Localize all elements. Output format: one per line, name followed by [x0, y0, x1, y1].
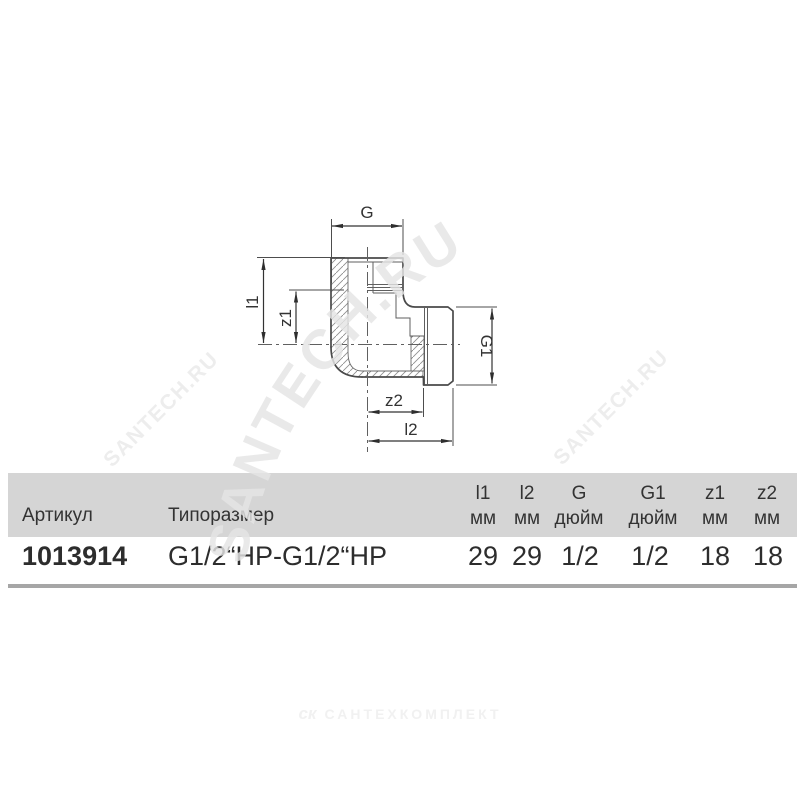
column-unit-z2: мм — [735, 508, 799, 530]
value-z2: 18 — [736, 541, 800, 572]
dim-label-g: G — [360, 203, 373, 222]
table-header-article: Артикул — [22, 505, 93, 527]
dim-label-g1: G1 — [477, 335, 496, 358]
dim-label-z1: z1 — [276, 309, 295, 327]
column-header-z2: z2 — [735, 483, 799, 505]
column-header-g: G — [547, 483, 611, 505]
fitting-technical-drawing: G l1 z1 G1 z2 l2 — [0, 0, 800, 470]
santehkomplekt-logo-text: САНТЕХКОМПЛЕКТ — [325, 706, 502, 722]
sk-logo-icon: ск — [298, 704, 316, 723]
table-bottom-rule — [8, 584, 797, 588]
bore-steps — [373, 293, 424, 336]
santehkomplekt-logo: скСАНТЕХКОМПЛЕКТ — [0, 704, 800, 724]
catalog-product-drawing-page: G l1 z1 G1 z2 l2 Артикул Типоразмер l1 м… — [0, 0, 800, 800]
column-unit-g: дюйм — [547, 508, 611, 530]
value-g: 1/2 — [548, 541, 612, 572]
table-header-size: Типоразмер — [168, 505, 274, 527]
article-number: 1013914 — [22, 541, 127, 572]
value-g1: 1/2 — [618, 541, 682, 572]
dim-label-l1: l1 — [243, 295, 262, 308]
type-size: G1/2“НР-G1/2“НР — [168, 541, 387, 572]
dim-label-l2: l2 — [404, 420, 417, 439]
dim-label-z2: z2 — [385, 391, 403, 410]
column-header-g1: G1 — [621, 483, 685, 505]
fitting-wall-section-right — [411, 336, 424, 371]
column-unit-g1: дюйм — [621, 508, 685, 530]
